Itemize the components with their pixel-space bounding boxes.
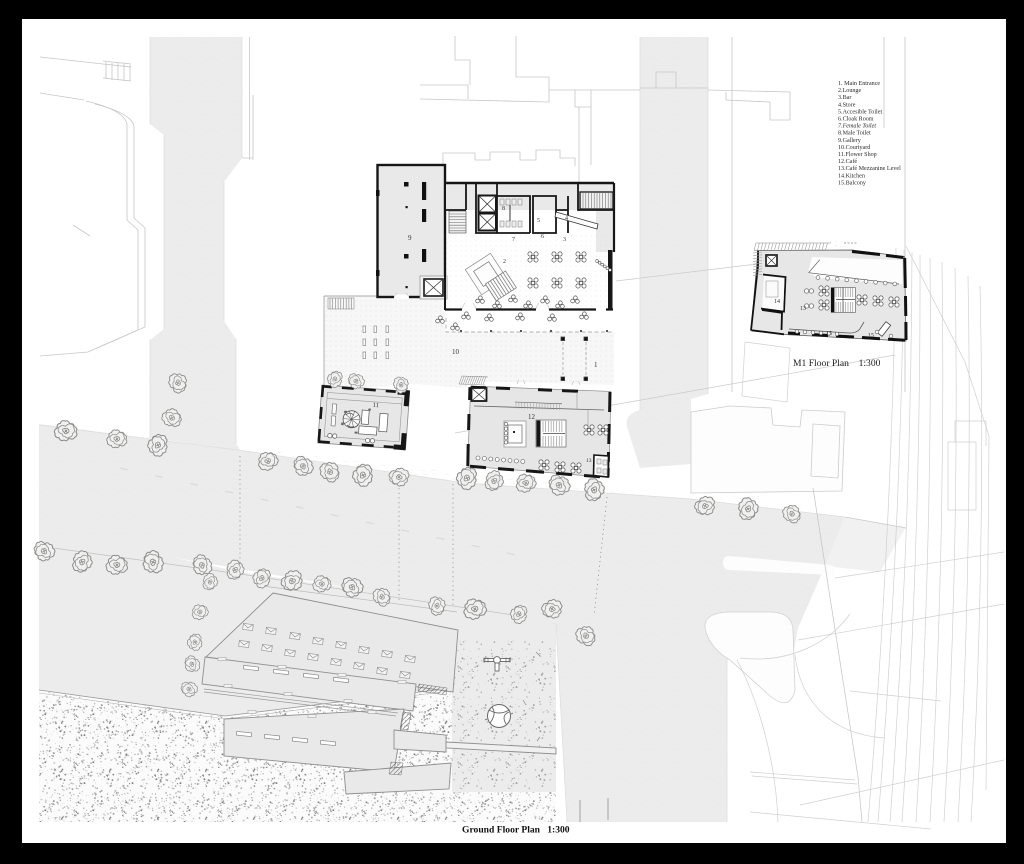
svg-text:8: 8 <box>502 206 505 212</box>
svg-text:15: 15 <box>826 331 832 337</box>
svg-text:6.Cloak Room: 6.Cloak Room <box>838 117 874 123</box>
svg-text:14: 14 <box>774 299 780 305</box>
svg-text:10: 10 <box>452 348 460 356</box>
svg-text:3: 3 <box>563 237 566 243</box>
svg-text:2.Lounge: 2.Lounge <box>838 88 861 94</box>
svg-text:11.Flower Shop: 11.Flower Shop <box>838 152 877 158</box>
svg-text:13: 13 <box>800 306 806 312</box>
svg-text:5: 5 <box>537 218 540 224</box>
svg-text:15: 15 <box>868 333 874 339</box>
svg-text:2: 2 <box>503 259 506 265</box>
svg-text:4.Store: 4.Store <box>838 102 856 108</box>
svg-text:8.Male Toilet: 8.Male Toilet <box>838 131 871 137</box>
svg-text:M1 Floor Plan 1:300: M1 Floor Plan 1:300 <box>793 358 881 369</box>
svg-text:6: 6 <box>541 234 544 240</box>
svg-text:5.Accesible Toilet: 5.Accesible Toilet <box>838 109 882 115</box>
svg-text:13.Café Mezzanine Level: 13.Café Mezzanine Level <box>838 165 901 172</box>
svg-text:4: 4 <box>565 216 568 222</box>
svg-text:7: 7 <box>512 237 515 243</box>
svg-text:15.Balcony: 15.Balcony <box>838 180 867 186</box>
svg-text:10.Courtyard: 10.Courtyard <box>838 145 870 151</box>
svg-text:13: 13 <box>586 458 592 464</box>
svg-text:3.Bar: 3.Bar <box>838 95 851 101</box>
svg-text:9.Gallery: 9.Gallery <box>838 138 862 144</box>
svg-text:12.Café: 12.Café <box>838 158 857 165</box>
svg-text:1: 1 <box>594 361 598 369</box>
svg-text:Ground Floor Plan 1:300: Ground Floor Plan 1:300 <box>462 825 570 836</box>
svg-text:1. Main Entrance: 1. Main Entrance <box>838 81 880 87</box>
svg-text:9: 9 <box>408 234 412 242</box>
svg-text:12: 12 <box>528 413 536 421</box>
svg-text:14.Kitchen: 14.Kitchen <box>838 173 865 179</box>
svg-text:11: 11 <box>372 402 379 409</box>
svg-text:7.Female Toilet: 7.Female Toilet <box>838 124 876 130</box>
